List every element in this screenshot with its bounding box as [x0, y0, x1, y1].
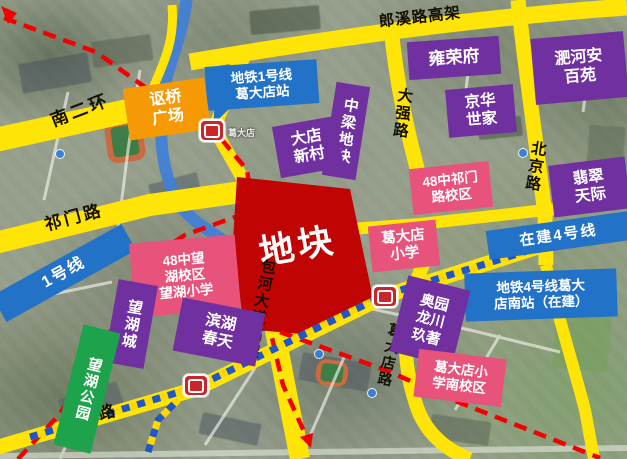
- metro-line4-station-label: 地铁4号线葛大 店南站（在建）: [464, 268, 618, 321]
- place-feicui-tianji: 翡翠 天际: [548, 157, 627, 218]
- place-school48-qimen: 48中祁门 路校区: [409, 161, 493, 215]
- place-yongrongfu: 雍荣府: [407, 36, 501, 80]
- metro-station-icon-southwest: [183, 374, 209, 397]
- map-canvas[interactable]: 地块 郎溪路高架 南二环 祁门路 大强路 北京路 包河大道高架 葛大店路 龙川路…: [0, 0, 627, 459]
- metro-station-icon-gedadian-south: [372, 285, 398, 308]
- place-feihe-anbaiyuan: 淝河安 百苑: [530, 31, 627, 105]
- poi-dot: [314, 349, 324, 359]
- place-dadian-xincun: 大店 新村: [272, 116, 344, 178]
- station-name-text: 葛大店: [228, 126, 255, 139]
- place-gedadian-school: 葛大店 小学: [368, 220, 440, 273]
- metro-station-icon-gedadian: [199, 119, 225, 142]
- place-jinghua-shijia: 京华 世家: [445, 84, 517, 138]
- metro-line1-station-callout-text: 地铁1号线 葛大店站: [230, 67, 294, 103]
- metro-line1-station-callout: 地铁1号线 葛大店站: [205, 59, 320, 111]
- poi-dot: [55, 149, 65, 159]
